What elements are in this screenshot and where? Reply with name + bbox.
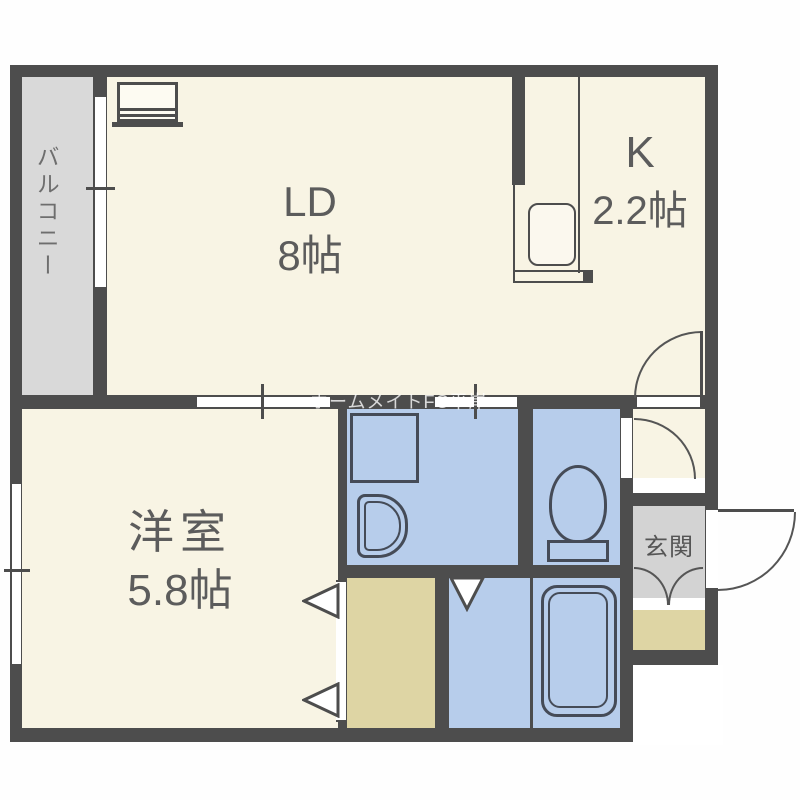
entrance-label: 玄関 bbox=[633, 535, 705, 560]
floorplan: バルコニー LD 8帖 K 2.2帖 洋室 5.8帖 玄関 ホームメイトFC平岸 bbox=[0, 0, 800, 800]
kitchen-counter-edge bbox=[513, 270, 592, 272]
kitchen-size: 2.2帖 bbox=[565, 190, 715, 232]
stove-base bbox=[112, 122, 183, 127]
folding-door-triangle-icon bbox=[302, 682, 340, 718]
western-room-window bbox=[12, 482, 21, 666]
bathtub-rim bbox=[548, 592, 608, 708]
toilet-doorway bbox=[621, 418, 632, 478]
closet-area bbox=[346, 578, 435, 728]
wall-top bbox=[10, 65, 718, 77]
washbasin-bowl bbox=[364, 501, 401, 551]
wall-hall-entrance bbox=[633, 493, 705, 506]
stove-icon bbox=[117, 82, 178, 122]
stove-line bbox=[120, 114, 175, 117]
folding-door-triangle-icon bbox=[302, 583, 340, 619]
wall-kitchen-stub bbox=[512, 65, 525, 185]
kitchen-counter-endcap bbox=[583, 270, 593, 283]
wall-washroom-right bbox=[518, 409, 533, 578]
bathtub-icon bbox=[541, 585, 617, 717]
western-room-label: 洋室 bbox=[90, 508, 270, 556]
kitchen-counter-left bbox=[513, 185, 515, 283]
hall-doorway bbox=[637, 397, 700, 407]
front-doorway bbox=[706, 510, 718, 588]
stove-line bbox=[120, 108, 175, 111]
sliding-window-icon bbox=[86, 187, 115, 190]
ld-label: LD bbox=[220, 180, 400, 224]
sliding-door-tick bbox=[261, 384, 264, 419]
wall-entrance-bottom bbox=[620, 650, 718, 665]
ld-size: 8帖 bbox=[220, 234, 400, 278]
kitchen-label: K bbox=[600, 130, 680, 176]
washing-machine-icon bbox=[350, 413, 419, 483]
front-door-swing-arc-icon bbox=[718, 512, 796, 591]
wall-bath-partition bbox=[530, 578, 533, 728]
balcony-window bbox=[95, 95, 106, 289]
toilet-tank bbox=[547, 540, 609, 562]
shoe-cabinet bbox=[633, 610, 705, 650]
hall-entrance-opening bbox=[633, 478, 705, 493]
toilet-icon bbox=[549, 465, 607, 543]
wall-bottom bbox=[10, 728, 633, 742]
watermark: ホームメイトFC平岸 bbox=[310, 388, 487, 414]
balcony-label: バルコニー bbox=[34, 105, 58, 320]
door-leaf bbox=[700, 331, 703, 396]
kitchen-counter-edge bbox=[513, 281, 592, 283]
outside-notch bbox=[633, 665, 723, 745]
wall-closet-right bbox=[435, 568, 449, 742]
western-room-size: 5.8帖 bbox=[85, 568, 275, 614]
kitchen-counter-front bbox=[578, 77, 580, 273]
folding-door-triangle-icon bbox=[449, 576, 485, 612]
sliding-window-icon bbox=[4, 569, 30, 572]
wall-wet-south bbox=[338, 565, 633, 578]
